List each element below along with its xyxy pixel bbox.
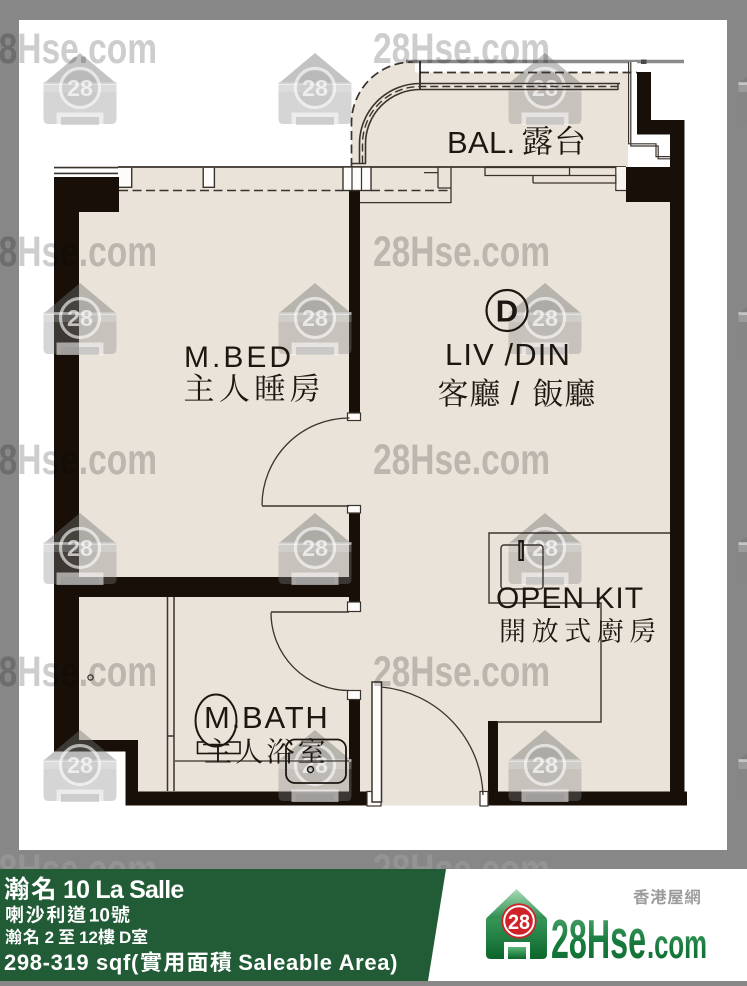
svg-text:Saleable Area): Saleable Area) (238, 950, 398, 975)
svg-text:LIV /DIN: LIV /DIN (445, 337, 571, 372)
svg-text:28Hse.com: 28Hse.com (373, 436, 550, 484)
svg-text:10: 10 (89, 906, 110, 927)
svg-text:.com: .com (647, 921, 707, 967)
svg-text:28Hse.com: 28Hse.com (373, 648, 550, 696)
svg-text:10 La Salle: 10 La Salle (63, 876, 184, 904)
svg-text:28Hse: 28Hse (551, 908, 646, 970)
svg-text:12: 12 (79, 928, 98, 947)
svg-text:M.BED: M.BED (184, 341, 294, 374)
svg-text:OPEN KIT: OPEN KIT (496, 582, 644, 615)
svg-text:28Hse.com: 28Hse.com (0, 25, 157, 73)
svg-text:298-319 sqf(: 298-319 sqf( (4, 950, 139, 975)
svg-text:M.BATH: M.BATH (204, 700, 330, 735)
svg-text:2: 2 (45, 928, 54, 947)
svg-text:28Hse.com: 28Hse.com (0, 228, 157, 276)
svg-text:D: D (496, 294, 518, 329)
svg-text:D: D (119, 928, 131, 947)
svg-text:28: 28 (508, 911, 530, 934)
svg-text:BAL.: BAL. (447, 125, 515, 160)
svg-text:28Hse.com: 28Hse.com (373, 25, 550, 73)
svg-text:28Hse.com: 28Hse.com (0, 436, 157, 484)
svg-text:28Hse.com: 28Hse.com (0, 648, 157, 696)
svg-text:28Hse.com: 28Hse.com (373, 228, 550, 276)
svg-text:/: / (511, 376, 520, 412)
